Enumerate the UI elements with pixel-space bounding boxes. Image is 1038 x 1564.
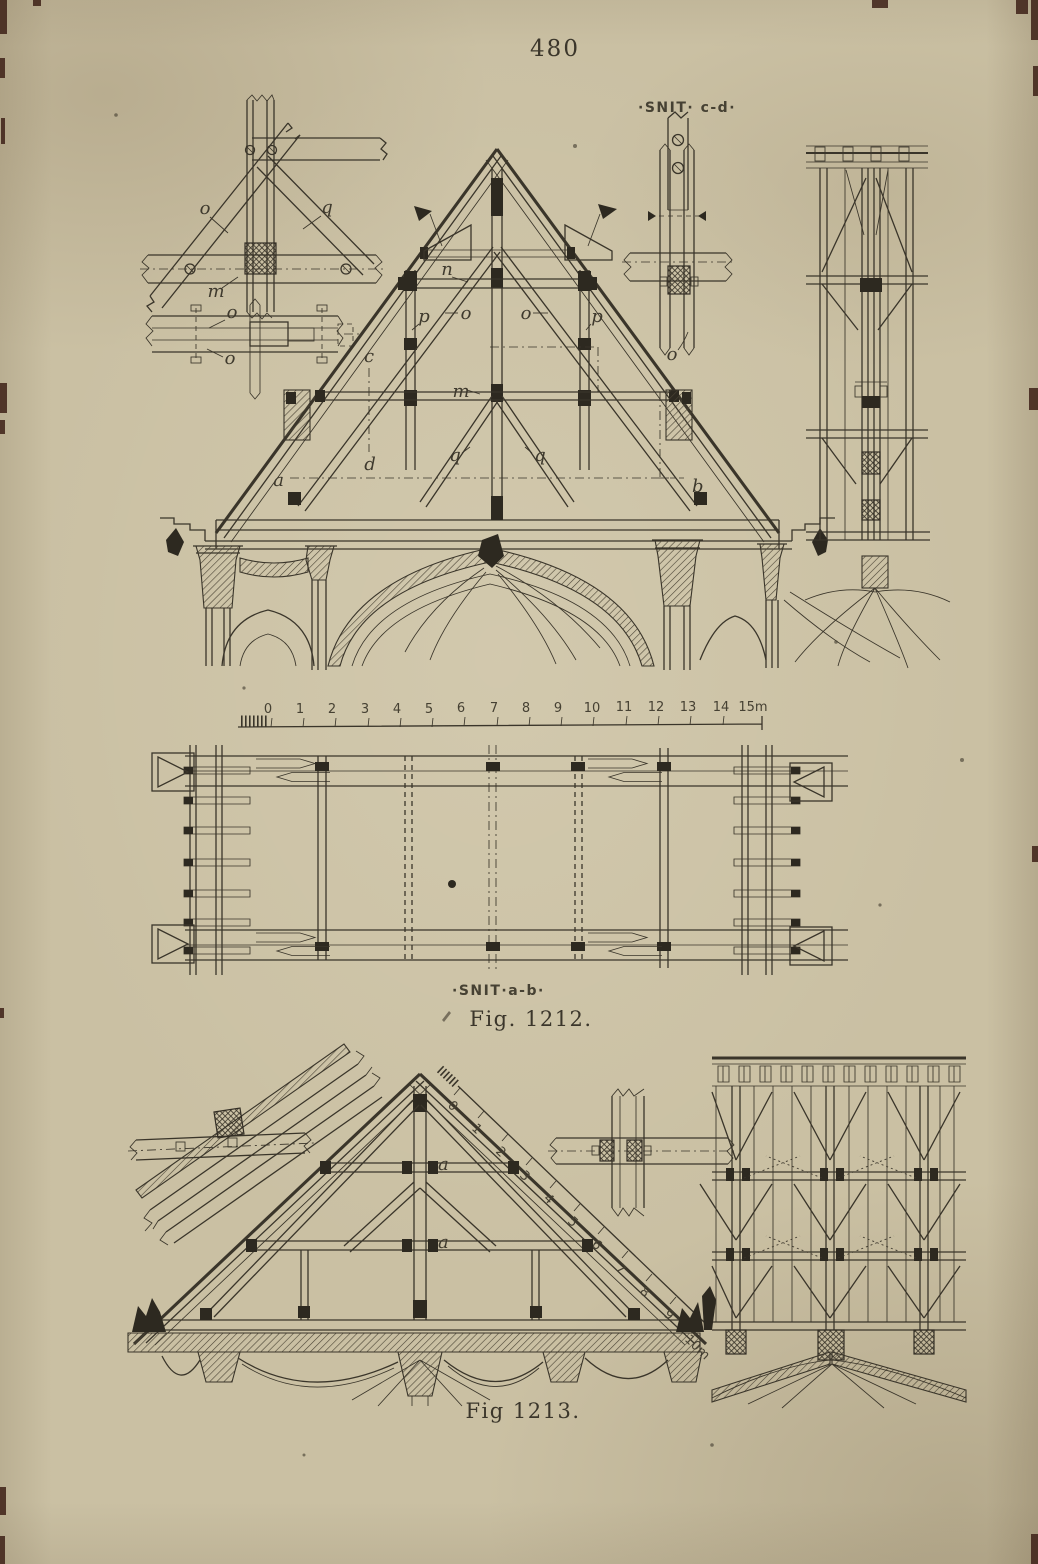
edge-mark	[1029, 388, 1038, 410]
fig1213-caption: Fig 1213.	[465, 1399, 580, 1423]
fig1212-scale-bar: 0 1 2 3 4 5 6 7 8 9 10 11 12 13 14 15m	[238, 700, 768, 730]
page-drawing: 480 o q m	[0, 0, 1038, 1564]
scale1213-tick-7: 7	[612, 1261, 628, 1278]
scale-tick-0: 0	[264, 702, 272, 717]
label-p-left: p	[418, 306, 430, 327]
scale-tick-11: 11	[616, 700, 633, 715]
edge-mark	[0, 420, 5, 434]
label-o-lap-bottom: o	[225, 348, 236, 369]
scale-tick-14: 14	[713, 700, 730, 715]
label-m: m	[452, 381, 469, 402]
edge-mark	[0, 0, 7, 34]
fig1212-plan-view: ·SNIT·a-b·	[152, 745, 848, 999]
label-a-upper: a	[438, 1154, 449, 1175]
edge-mark	[0, 58, 5, 78]
scale-tick-15: 15m	[738, 700, 767, 715]
label-o-right: o	[521, 303, 532, 324]
scale-tick-7: 7	[490, 701, 498, 716]
label-a: a	[273, 470, 284, 491]
fig1213-drawing: a a 0 1 2 3 4 5 6 7 8 9 10m	[128, 1044, 966, 1423]
label-a-lower: a	[438, 1232, 449, 1253]
label-q-right: q	[534, 445, 546, 466]
scale-tick-4: 4	[393, 702, 401, 717]
scale-tick-8: 8	[522, 701, 530, 716]
label-q-left: q	[449, 445, 461, 466]
edge-mark	[1031, 1534, 1038, 1564]
fig1212-drawing: o q m o o ·SNIT· c-d·	[140, 95, 950, 1031]
label-o-section: o	[667, 344, 678, 365]
section-ab-label: ·SNIT·a-b·	[452, 983, 545, 999]
label-o-detail: o	[200, 198, 211, 219]
fig1212-detail-lap-joint: o o	[146, 299, 362, 399]
edge-mark	[0, 383, 7, 413]
label-n: n	[441, 259, 453, 280]
edge-mark	[1016, 0, 1028, 14]
scale-tick-3: 3	[361, 702, 369, 717]
scale-tick-2: 2	[328, 702, 336, 717]
edge-mark	[33, 0, 41, 6]
scanned-book-page: 480 o q m	[0, 0, 1038, 1564]
label-o-left: o	[461, 303, 472, 324]
edge-mark	[1032, 846, 1038, 862]
fig1212-vault	[193, 534, 950, 670]
edge-mark	[1031, 0, 1038, 40]
edge-mark	[1, 118, 5, 144]
edge-mark	[1033, 66, 1038, 96]
scale1213-tick-9: 9	[660, 1307, 676, 1324]
scale-tick-13: 13	[680, 700, 697, 715]
label-o-lap-top: o	[227, 302, 238, 323]
page-number: 480	[530, 36, 580, 62]
label-c: c	[364, 346, 374, 367]
label-d: d	[364, 454, 376, 475]
scale1213-tick-8: 8	[636, 1284, 652, 1301]
fig1213-scale-bar: 0 1 2 3 4 5 6 7 8 9 10m	[440, 1069, 713, 1363]
label-p-right: p	[591, 306, 603, 327]
plan-ladder-rungs	[184, 767, 800, 954]
edge-mark	[0, 1536, 5, 1564]
scale-tick-6: 6	[457, 701, 465, 716]
fig1212-detail-joint-top: o q m	[140, 95, 387, 319]
edge-mark	[0, 1487, 6, 1515]
label-q-detail: q	[321, 197, 333, 218]
scale1213-tick-5: 5	[564, 1214, 580, 1231]
scale-tick-5: 5	[425, 702, 433, 717]
scale1213-tick-4: 4	[540, 1191, 556, 1208]
scale-tick-1: 1	[296, 702, 304, 717]
fig1212-caption: Fig. 1212.	[469, 1007, 592, 1031]
label-b: b	[692, 476, 704, 497]
label-m-detail: m	[207, 281, 224, 302]
fig1213-side-panel	[700, 1058, 966, 1408]
plan-ink-dot	[448, 880, 456, 888]
edge-mark	[872, 0, 888, 8]
fig1212-section-cd-detail: ·SNIT· c-d· o	[622, 100, 736, 365]
scale-tick-12: 12	[648, 700, 665, 715]
edge-mark	[0, 1008, 4, 1018]
scale-tick-10: 10	[584, 701, 601, 716]
fig1212-side-frame	[806, 146, 930, 540]
scale-tick-9: 9	[554, 701, 562, 716]
